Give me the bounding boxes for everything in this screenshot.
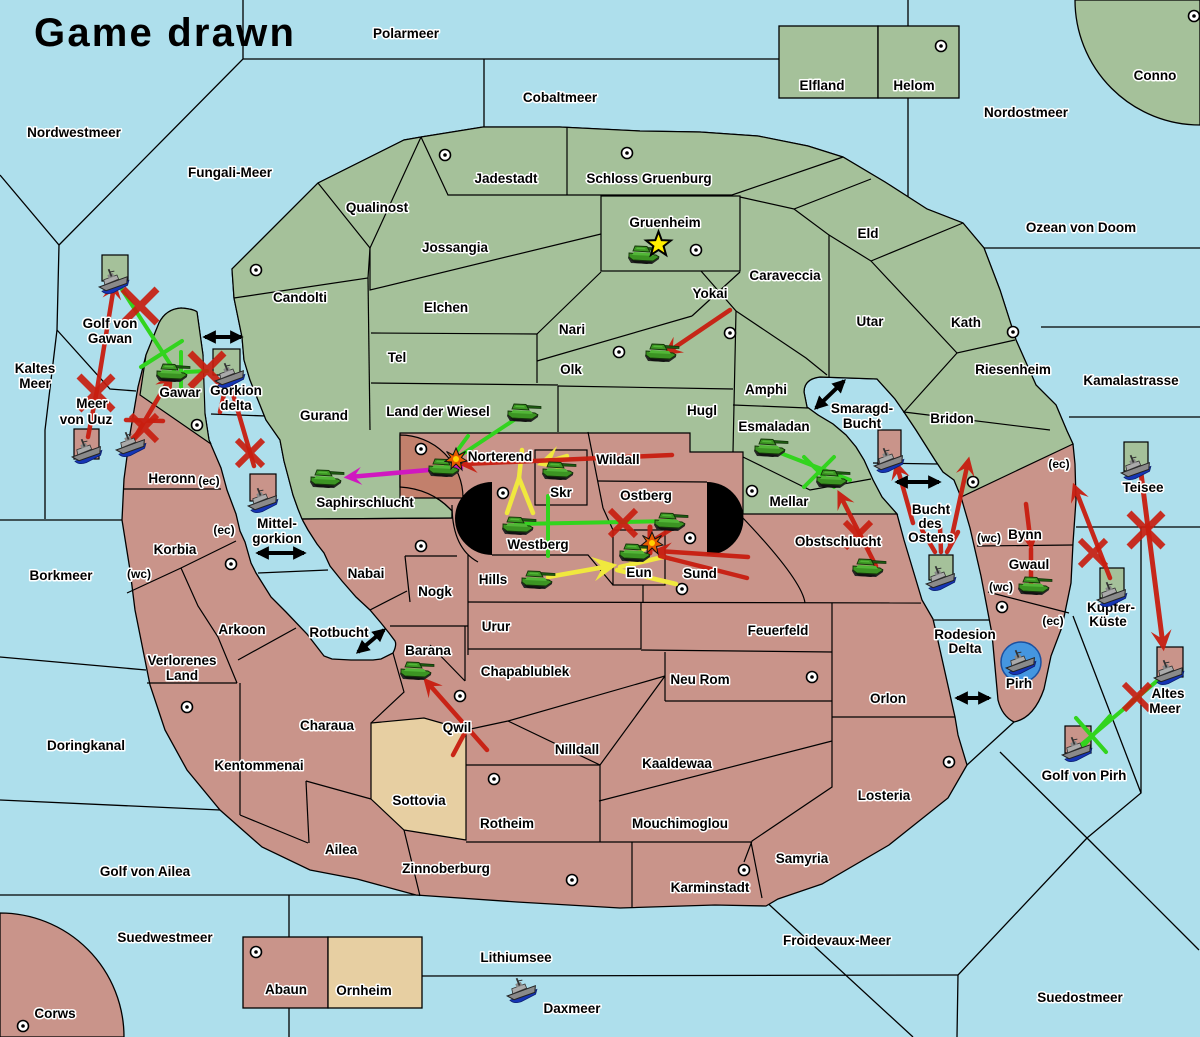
svg-text:Daxmeer: Daxmeer xyxy=(543,1001,601,1016)
svg-text:Karminstadt: Karminstadt xyxy=(671,880,750,895)
svg-text:(ec): (ec) xyxy=(1042,614,1063,628)
svg-text:(wc): (wc) xyxy=(127,567,151,581)
svg-text:Samyria: Samyria xyxy=(776,851,829,866)
svg-text:Arkoon: Arkoon xyxy=(218,622,265,637)
svg-text:Sottovia: Sottovia xyxy=(392,793,446,808)
svg-text:Yokai: Yokai xyxy=(692,286,727,301)
svg-text:Chapablublek: Chapablublek xyxy=(481,664,570,679)
svg-text:Gurand: Gurand xyxy=(300,408,348,423)
svg-text:Esmaladan: Esmaladan xyxy=(738,419,809,434)
svg-text:Suedwestmeer: Suedwestmeer xyxy=(117,930,213,945)
svg-text:Borkmeer: Borkmeer xyxy=(29,568,93,583)
svg-text:Feuerfeld: Feuerfeld xyxy=(748,623,809,638)
svg-text:Gruenheim: Gruenheim xyxy=(629,215,700,230)
svg-text:Neu Rom: Neu Rom xyxy=(670,672,729,687)
svg-text:Golf von: Golf von xyxy=(83,316,138,331)
svg-text:Gawan: Gawan xyxy=(88,331,132,346)
svg-text:Sund: Sund xyxy=(683,566,717,581)
svg-text:Polarmeer: Polarmeer xyxy=(373,26,440,41)
svg-text:Corws: Corws xyxy=(34,1006,75,1021)
svg-text:Kaltes: Kaltes xyxy=(15,361,56,376)
svg-text:Rodesion: Rodesion xyxy=(934,627,996,642)
svg-text:Urur: Urur xyxy=(482,619,511,634)
svg-text:Doringkanal: Doringkanal xyxy=(47,738,125,753)
svg-text:Candolti: Candolti xyxy=(273,290,327,305)
svg-text:Nordostmeer: Nordostmeer xyxy=(984,105,1069,120)
svg-text:Cobaltmeer: Cobaltmeer xyxy=(523,90,598,105)
svg-text:Olk: Olk xyxy=(560,362,582,377)
svg-text:Game drawn: Game drawn xyxy=(34,11,296,55)
svg-text:Elchen: Elchen xyxy=(424,300,468,315)
svg-text:(ec): (ec) xyxy=(1048,457,1069,471)
svg-text:Rotheim: Rotheim xyxy=(480,816,534,831)
svg-text:Meer: Meer xyxy=(1149,701,1181,716)
svg-text:Hugl: Hugl xyxy=(687,403,717,418)
svg-text:Ornheim: Ornheim xyxy=(336,983,392,998)
svg-text:Schloss Gruenburg: Schloss Gruenburg xyxy=(586,171,711,186)
svg-text:Orlon: Orlon xyxy=(870,691,906,706)
svg-text:Heronn: Heronn xyxy=(148,471,195,486)
svg-text:Qualinost: Qualinost xyxy=(346,200,409,215)
svg-text:Mellar: Mellar xyxy=(769,494,809,509)
svg-text:Nabai: Nabai xyxy=(348,566,385,581)
svg-text:Nogk: Nogk xyxy=(418,584,452,599)
svg-text:von Uuz: von Uuz xyxy=(60,412,113,427)
svg-text:Bridon: Bridon xyxy=(930,411,974,426)
svg-text:Barana: Barana xyxy=(405,643,451,658)
svg-text:Fungali-Meer: Fungali-Meer xyxy=(188,165,273,180)
svg-text:Bucht: Bucht xyxy=(843,416,882,431)
svg-text:Mittel-: Mittel- xyxy=(257,516,297,531)
svg-text:Land der Wiesel: Land der Wiesel xyxy=(386,404,489,419)
svg-text:Amphi: Amphi xyxy=(745,382,787,397)
svg-text:Gwaul: Gwaul xyxy=(1009,557,1050,572)
svg-text:Eld: Eld xyxy=(857,226,878,241)
svg-text:Hills: Hills xyxy=(479,572,508,587)
svg-text:Rotbucht: Rotbucht xyxy=(309,625,369,640)
svg-text:Mouchimoglou: Mouchimoglou xyxy=(632,816,728,831)
svg-text:Wildall: Wildall xyxy=(596,452,639,467)
svg-text:Zinnoberburg: Zinnoberburg xyxy=(402,861,490,876)
svg-text:Delta: Delta xyxy=(948,641,982,656)
svg-text:Teisee: Teisee xyxy=(1122,480,1164,495)
svg-text:Qwil: Qwil xyxy=(443,720,472,735)
svg-text:Verlorenes: Verlorenes xyxy=(147,653,216,668)
svg-text:(ec): (ec) xyxy=(213,523,234,537)
svg-text:Nari: Nari xyxy=(559,322,585,337)
svg-text:Obstschlucht: Obstschlucht xyxy=(795,534,882,549)
svg-text:Jossangia: Jossangia xyxy=(422,240,489,255)
svg-text:Lithiumsee: Lithiumsee xyxy=(480,950,552,965)
svg-text:Altes: Altes xyxy=(1151,686,1184,701)
svg-text:(ec): (ec) xyxy=(198,474,219,488)
svg-text:Caraveccia: Caraveccia xyxy=(749,268,821,283)
svg-text:Kentommenai: Kentommenai xyxy=(214,758,303,773)
svg-text:Suedostmeer: Suedostmeer xyxy=(1037,990,1123,1005)
svg-text:Abaun: Abaun xyxy=(265,982,307,997)
svg-text:Ostens: Ostens xyxy=(908,530,954,545)
svg-text:Skr: Skr xyxy=(550,485,573,500)
svg-text:Utar: Utar xyxy=(856,314,884,329)
svg-text:Riesenheim: Riesenheim xyxy=(975,362,1051,377)
svg-text:Bynn: Bynn xyxy=(1008,527,1042,542)
svg-text:Meer: Meer xyxy=(19,376,51,391)
svg-text:Gawar: Gawar xyxy=(159,385,201,400)
svg-text:Meer: Meer xyxy=(76,396,108,411)
svg-text:delta: delta xyxy=(220,398,252,413)
svg-text:(wc): (wc) xyxy=(977,531,1001,545)
svg-text:Jadestadt: Jadestadt xyxy=(474,171,538,186)
svg-text:Losteria: Losteria xyxy=(858,788,911,803)
svg-text:Pirh: Pirh xyxy=(1006,676,1032,691)
svg-text:Kamalastrasse: Kamalastrasse xyxy=(1083,373,1179,388)
svg-text:des: des xyxy=(918,516,941,531)
svg-text:Korbia: Korbia xyxy=(154,542,197,557)
svg-text:Kath: Kath xyxy=(951,315,981,330)
svg-text:Tel: Tel xyxy=(388,350,407,365)
svg-text:Nordwestmeer: Nordwestmeer xyxy=(27,125,122,140)
svg-text:Conno: Conno xyxy=(1134,68,1177,83)
svg-text:Kaaldewaa: Kaaldewaa xyxy=(642,756,712,771)
svg-text:Land: Land xyxy=(166,668,198,683)
svg-text:Helom: Helom xyxy=(893,78,934,93)
svg-text:Norterend: Norterend xyxy=(468,449,533,464)
svg-text:Charaua: Charaua xyxy=(300,718,355,733)
svg-text:Eun: Eun xyxy=(626,565,652,580)
svg-text:Elfland: Elfland xyxy=(799,78,844,93)
svg-text:Golf von Pirh: Golf von Pirh xyxy=(1042,768,1127,783)
svg-text:Ailea: Ailea xyxy=(325,842,358,857)
svg-text:(wc): (wc) xyxy=(989,580,1013,594)
svg-text:Nilldall: Nilldall xyxy=(555,742,599,757)
svg-text:Ozean von Doom: Ozean von Doom xyxy=(1026,220,1136,235)
svg-text:Küste: Küste xyxy=(1089,614,1127,629)
svg-text:Ostberg: Ostberg xyxy=(620,488,672,503)
svg-text:Saphirschlucht: Saphirschlucht xyxy=(316,495,414,510)
svg-text:Froidevaux-Meer: Froidevaux-Meer xyxy=(783,933,892,948)
svg-text:Westberg: Westberg xyxy=(507,537,568,552)
svg-text:gorkion: gorkion xyxy=(252,531,302,546)
svg-text:Golf von Ailea: Golf von Ailea xyxy=(100,864,191,879)
svg-text:Bucht: Bucht xyxy=(912,502,951,517)
svg-text:Smaragd-: Smaragd- xyxy=(831,401,893,416)
